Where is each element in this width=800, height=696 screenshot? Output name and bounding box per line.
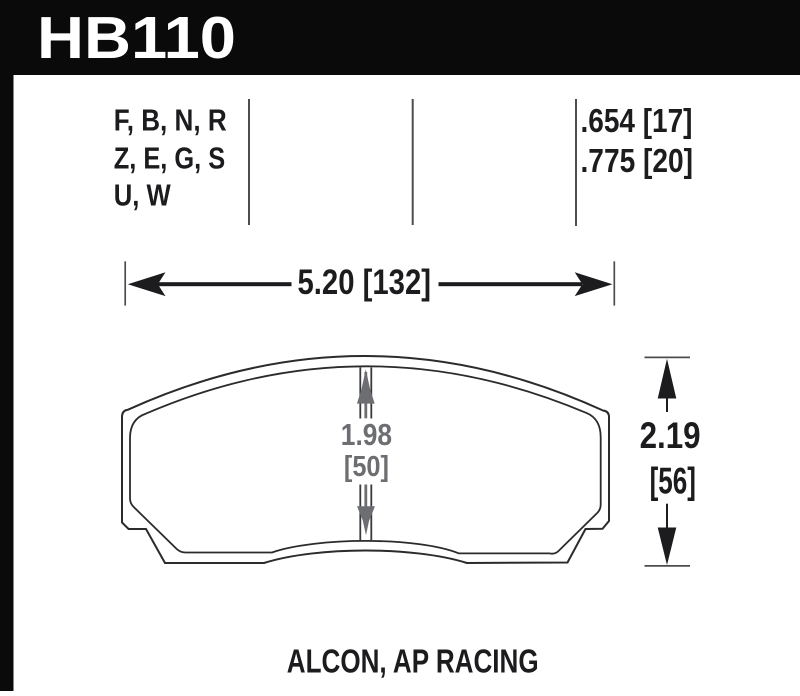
svg-text:Z, E, G, S: Z, E, G, S (114, 140, 226, 175)
svg-text:1.98: 1.98 (341, 418, 392, 452)
svg-text:5.20 [132]: 5.20 [132] (298, 262, 432, 302)
svg-text:HB110: HB110 (37, 4, 236, 71)
svg-text:.775 [20]: .775 [20] (581, 143, 694, 180)
svg-text:2.19: 2.19 (640, 415, 701, 456)
svg-text:[50]: [50] (344, 451, 389, 483)
svg-text:F, B, N, R: F, B, N, R (114, 102, 227, 137)
svg-text:U, W: U, W (114, 178, 172, 213)
svg-text:[56]: [56] (650, 460, 696, 501)
svg-text:.654 [17]: .654 [17] (581, 103, 693, 140)
svg-text:ALCON, AP RACING: ALCON, AP RACING (287, 644, 539, 681)
